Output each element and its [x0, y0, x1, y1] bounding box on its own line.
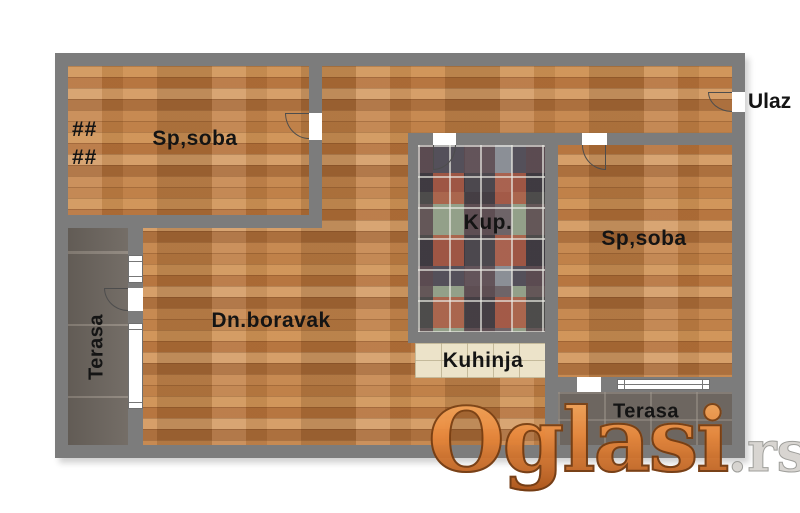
window-terrace-left-lower-icon [128, 323, 143, 409]
door-gap-entrance [732, 92, 745, 112]
label-living-room: Dn.boravak [211, 309, 330, 333]
watermark: Oglasi.rs [428, 396, 800, 484]
label-kitchen: Kuhinja [443, 349, 524, 373]
wall-bedroom-left-bottom [68, 215, 322, 228]
wall-bathroom-left [408, 133, 418, 343]
door-gap-terrace-left [128, 288, 143, 311]
label-bedroom-left: Sp,soba [152, 127, 237, 151]
door-gap-bathroom [433, 133, 456, 145]
door-gap-bedroom-right [582, 133, 607, 145]
wall-hall-bottom [408, 133, 732, 145]
wall-bath-kitchen [415, 332, 545, 343]
watermark-brand: Oglasi [428, 388, 728, 492]
wall-bedroom-left-right [309, 66, 322, 228]
radiator-marks: ## ## [72, 116, 97, 172]
label-entrance: Ulaz [748, 90, 791, 114]
radiator-row: ## [72, 116, 97, 144]
floor-plan-image: Sp,soba ## ## Sp,soba Dn.boravak Kup. Ku… [0, 0, 800, 513]
bathroom-floor [418, 145, 545, 332]
label-terrace-left: Terasa [86, 314, 109, 380]
watermark-tld: .rs [728, 419, 800, 485]
door-gap-bedroom-left [309, 113, 322, 140]
window-terrace-left-upper-icon [128, 255, 143, 283]
label-bedroom-right: Sp,soba [601, 227, 686, 251]
label-bathroom: Kup. [464, 211, 513, 235]
radiator-row: ## [72, 144, 97, 172]
